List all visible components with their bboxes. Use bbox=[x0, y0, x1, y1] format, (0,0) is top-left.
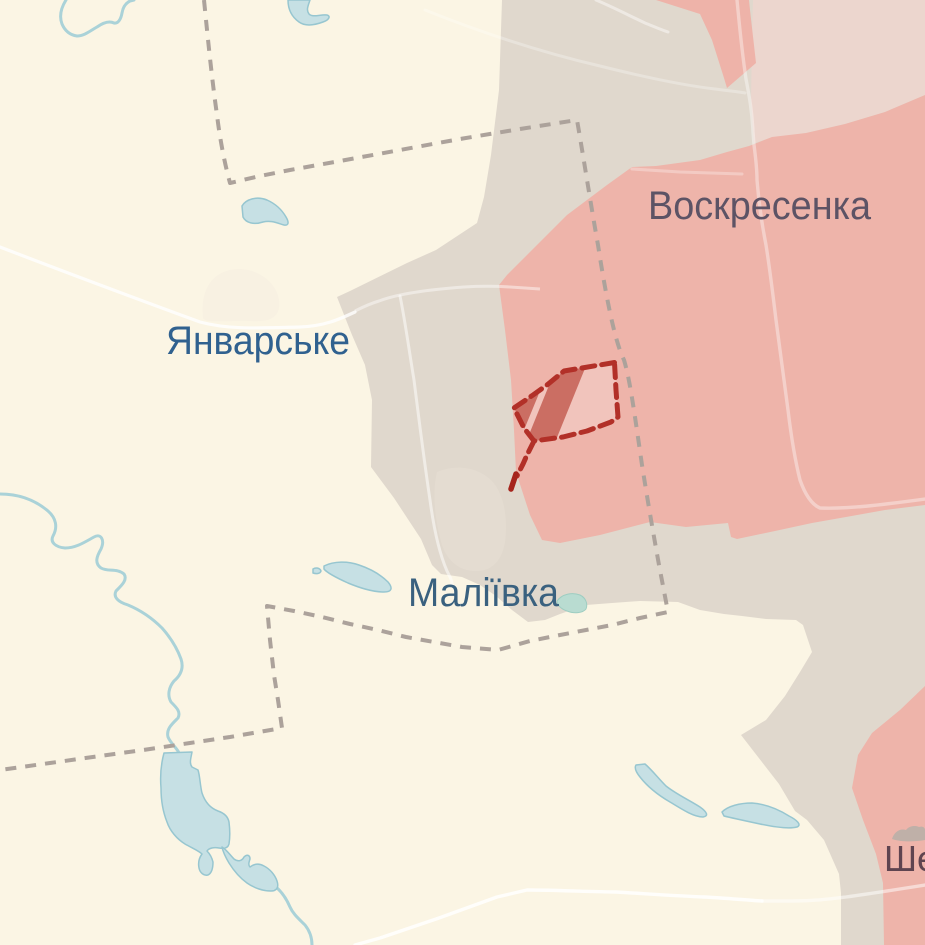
svg-text:Воскресенка: Воскресенка bbox=[648, 184, 872, 228]
svg-text:Январське: Январське bbox=[166, 319, 350, 363]
svg-text:Шевченко: Шевченко bbox=[884, 838, 925, 879]
svg-text:Маліївка: Маліївка bbox=[408, 571, 560, 615]
